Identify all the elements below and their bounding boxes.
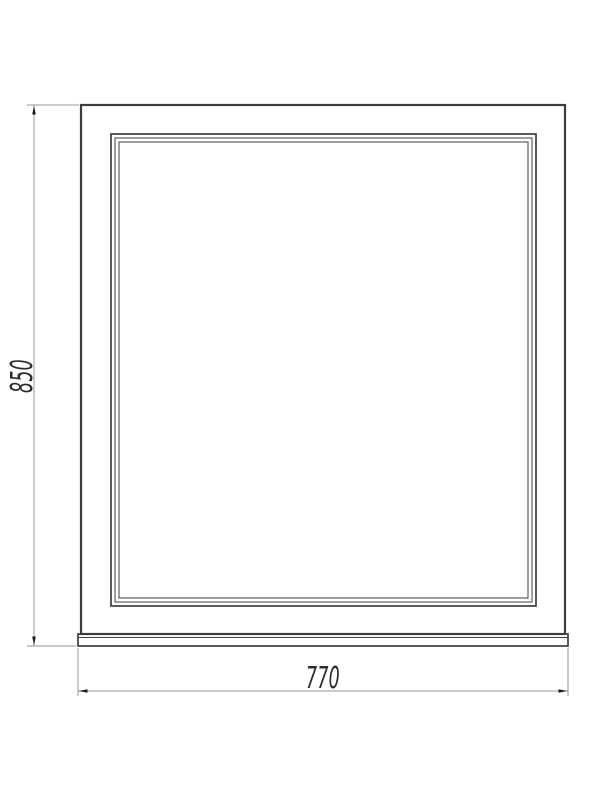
panel-molding-line-inner [119, 142, 528, 598]
base-sill [78, 634, 568, 646]
height-dimension-label: 850 [5, 359, 40, 393]
drawing-canvas: 850 770 [0, 0, 600, 800]
dimension-arrows [32, 106, 567, 693]
dimension-lines [27, 105, 568, 696]
frame-opening-edge [111, 134, 536, 606]
panel-molding-line-outer [115, 138, 532, 602]
width-dimension-label: 770 [306, 661, 340, 696]
arrow-right-icon [559, 689, 568, 693]
frame-outer-edge [81, 105, 565, 634]
arrow-left-icon [79, 689, 88, 693]
frame-object-lines [78, 105, 568, 646]
technical-drawing: 850 770 [0, 0, 600, 800]
arrow-down-icon [32, 637, 36, 646]
arrow-up-icon [32, 106, 36, 115]
